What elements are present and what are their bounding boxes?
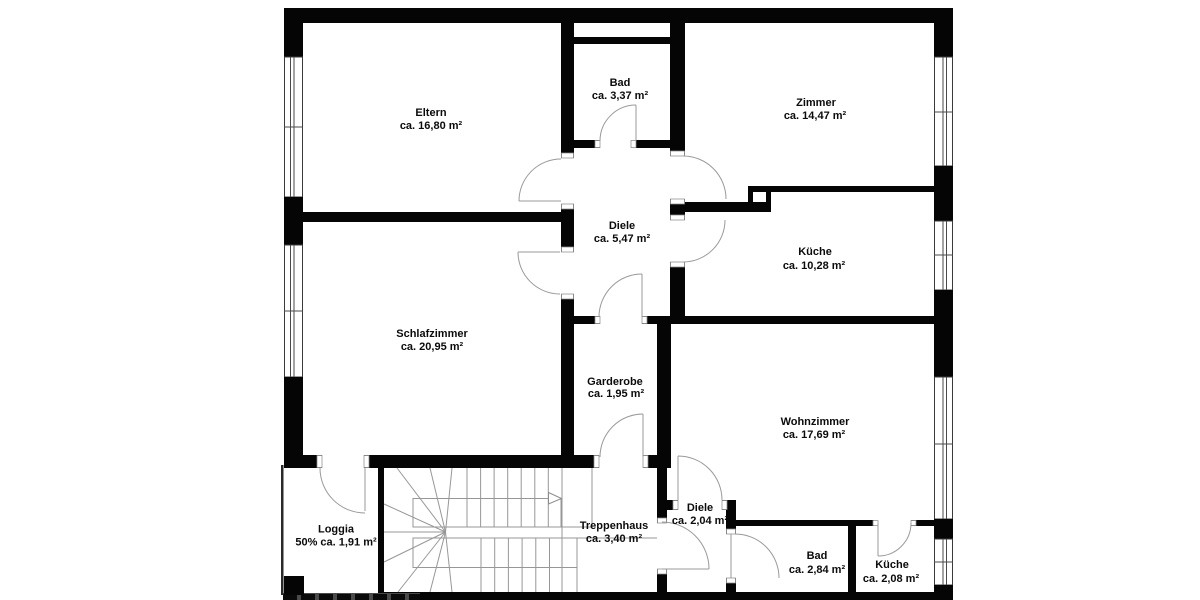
svg-text:Küche: Küche — [875, 559, 909, 571]
svg-text:50% ca. 1,91 m²: 50% ca. 1,91 m² — [295, 537, 377, 549]
svg-text:Treppenhaus: Treppenhaus — [580, 520, 648, 532]
svg-text:Diele: Diele — [609, 220, 635, 232]
svg-text:ca. 2,04 m²: ca. 2,04 m² — [672, 515, 729, 527]
svg-text:ca. 2,08 m²: ca. 2,08 m² — [863, 573, 920, 585]
svg-text:Schlafzimmer: Schlafzimmer — [396, 328, 468, 340]
svg-text:ca. 2,84 m²: ca. 2,84 m² — [789, 564, 846, 576]
svg-text:ca. 16,80 m²: ca. 16,80 m² — [400, 120, 463, 132]
svg-text:ca. 17,69 m²: ca. 17,69 m² — [783, 429, 846, 441]
svg-text:Bad: Bad — [807, 550, 828, 562]
svg-text:ca. 1,95 m²: ca. 1,95 m² — [588, 388, 645, 400]
svg-text:ca. 5,47 m²: ca. 5,47 m² — [594, 233, 651, 245]
svg-text:Eltern: Eltern — [415, 107, 446, 119]
svg-text:Küche: Küche — [798, 246, 832, 258]
svg-text:Garderobe: Garderobe — [587, 376, 643, 388]
svg-text:Bad: Bad — [610, 77, 631, 89]
svg-text:Wohnzimmer: Wohnzimmer — [781, 416, 851, 428]
svg-text:ca. 3,40 m²: ca. 3,40 m² — [586, 533, 643, 545]
svg-text:ca. 14,47 m²: ca. 14,47 m² — [784, 110, 847, 122]
svg-text:ca. 3,37 m²: ca. 3,37 m² — [592, 90, 649, 102]
svg-text:Diele: Diele — [687, 502, 713, 514]
svg-text:Zimmer: Zimmer — [796, 97, 836, 109]
svg-text:ca. 10,28 m²: ca. 10,28 m² — [783, 260, 846, 272]
svg-text:Loggia: Loggia — [318, 524, 355, 536]
svg-text:ca. 20,95 m²: ca. 20,95 m² — [401, 341, 464, 353]
